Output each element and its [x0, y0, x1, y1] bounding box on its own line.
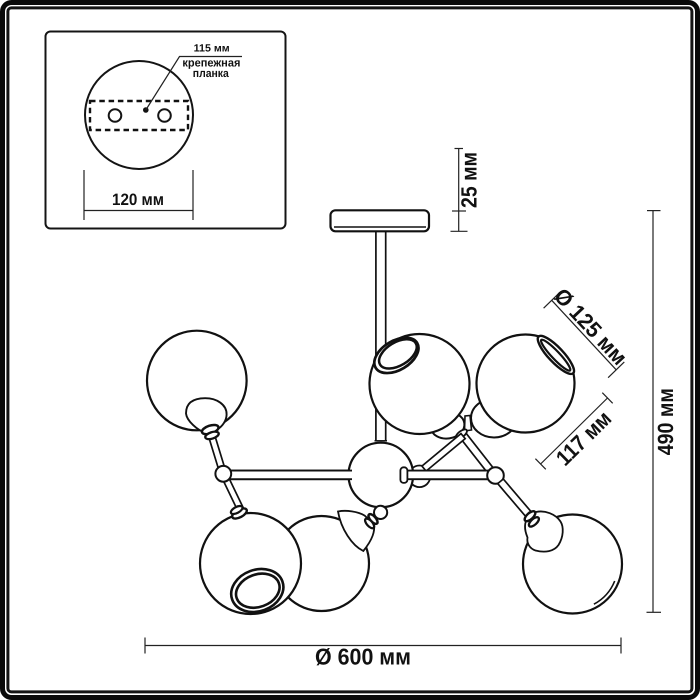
svg-text:25 мм: 25 мм — [457, 152, 482, 208]
svg-text:120 мм: 120 мм — [112, 191, 164, 209]
svg-text:490 мм: 490 мм — [653, 388, 678, 455]
svg-text:планка: планка — [193, 68, 230, 80]
svg-text:Ø 600 мм: Ø 600 мм — [315, 644, 411, 670]
svg-text:115 мм: 115 мм — [194, 43, 230, 55]
